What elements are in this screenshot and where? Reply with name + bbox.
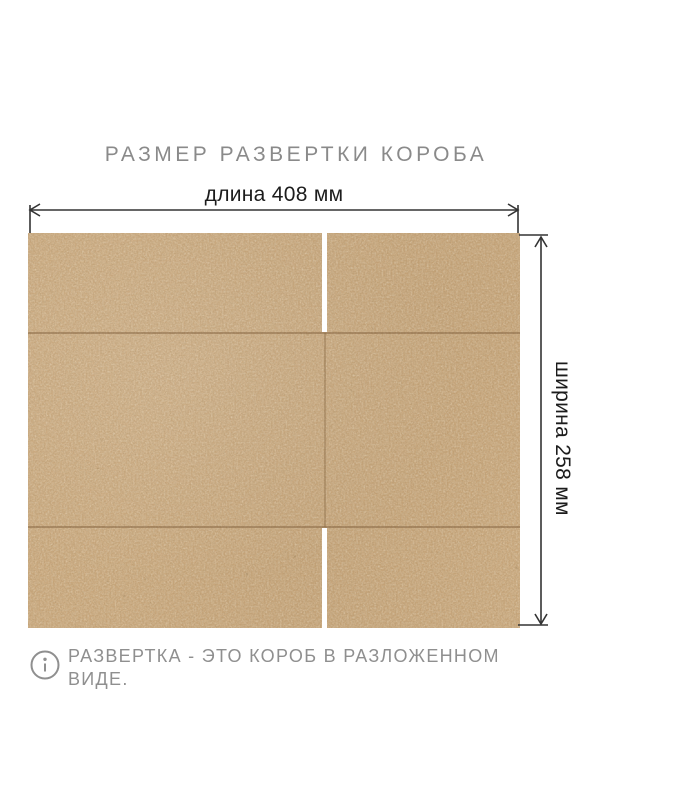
cardboard-unfolded-sheet xyxy=(28,233,520,628)
page-title: РАЗМЕР РАЗВЕРТКИ КОРОБА xyxy=(0,143,592,167)
info-note: РАЗВЕРТКА - ЭТО КОРОБ В РАЗЛОЖЕННОМ ВИДЕ… xyxy=(30,645,558,691)
info-icon xyxy=(30,650,60,680)
note-text: РАЗВЕРТКА - ЭТО КОРОБ В РАЗЛОЖЕННОМ ВИДЕ… xyxy=(68,645,558,691)
fold-line-bottom xyxy=(28,526,520,528)
fold-line-top xyxy=(28,332,520,334)
length-dimension-arrow xyxy=(24,198,524,238)
slot-bottom-flaps xyxy=(322,528,327,628)
fold-line-vertical xyxy=(324,333,326,527)
kraft-texture xyxy=(28,233,520,628)
width-dimension-label: ширина 258 мм xyxy=(550,361,574,516)
slot-top-flaps xyxy=(322,233,327,332)
